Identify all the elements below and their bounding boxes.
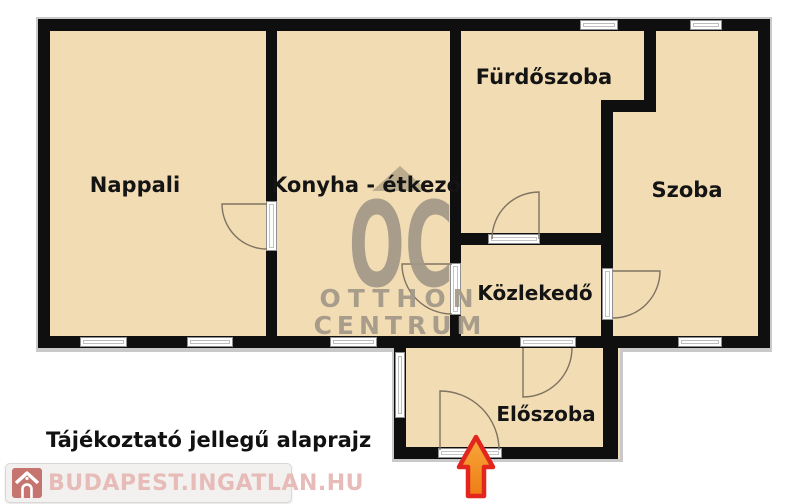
house-icon	[12, 468, 42, 498]
site-logo: BUDAPEST.INGATLAN.HU	[5, 463, 292, 503]
floor-plan: OC OTTHON CENTRUM Nappali Konyha - étkez…	[0, 0, 800, 504]
site-logo-text: BUDAPEST.INGATLAN.HU	[48, 471, 364, 496]
caption-text: Tájékoztató jellegű alaprajz	[46, 428, 371, 452]
